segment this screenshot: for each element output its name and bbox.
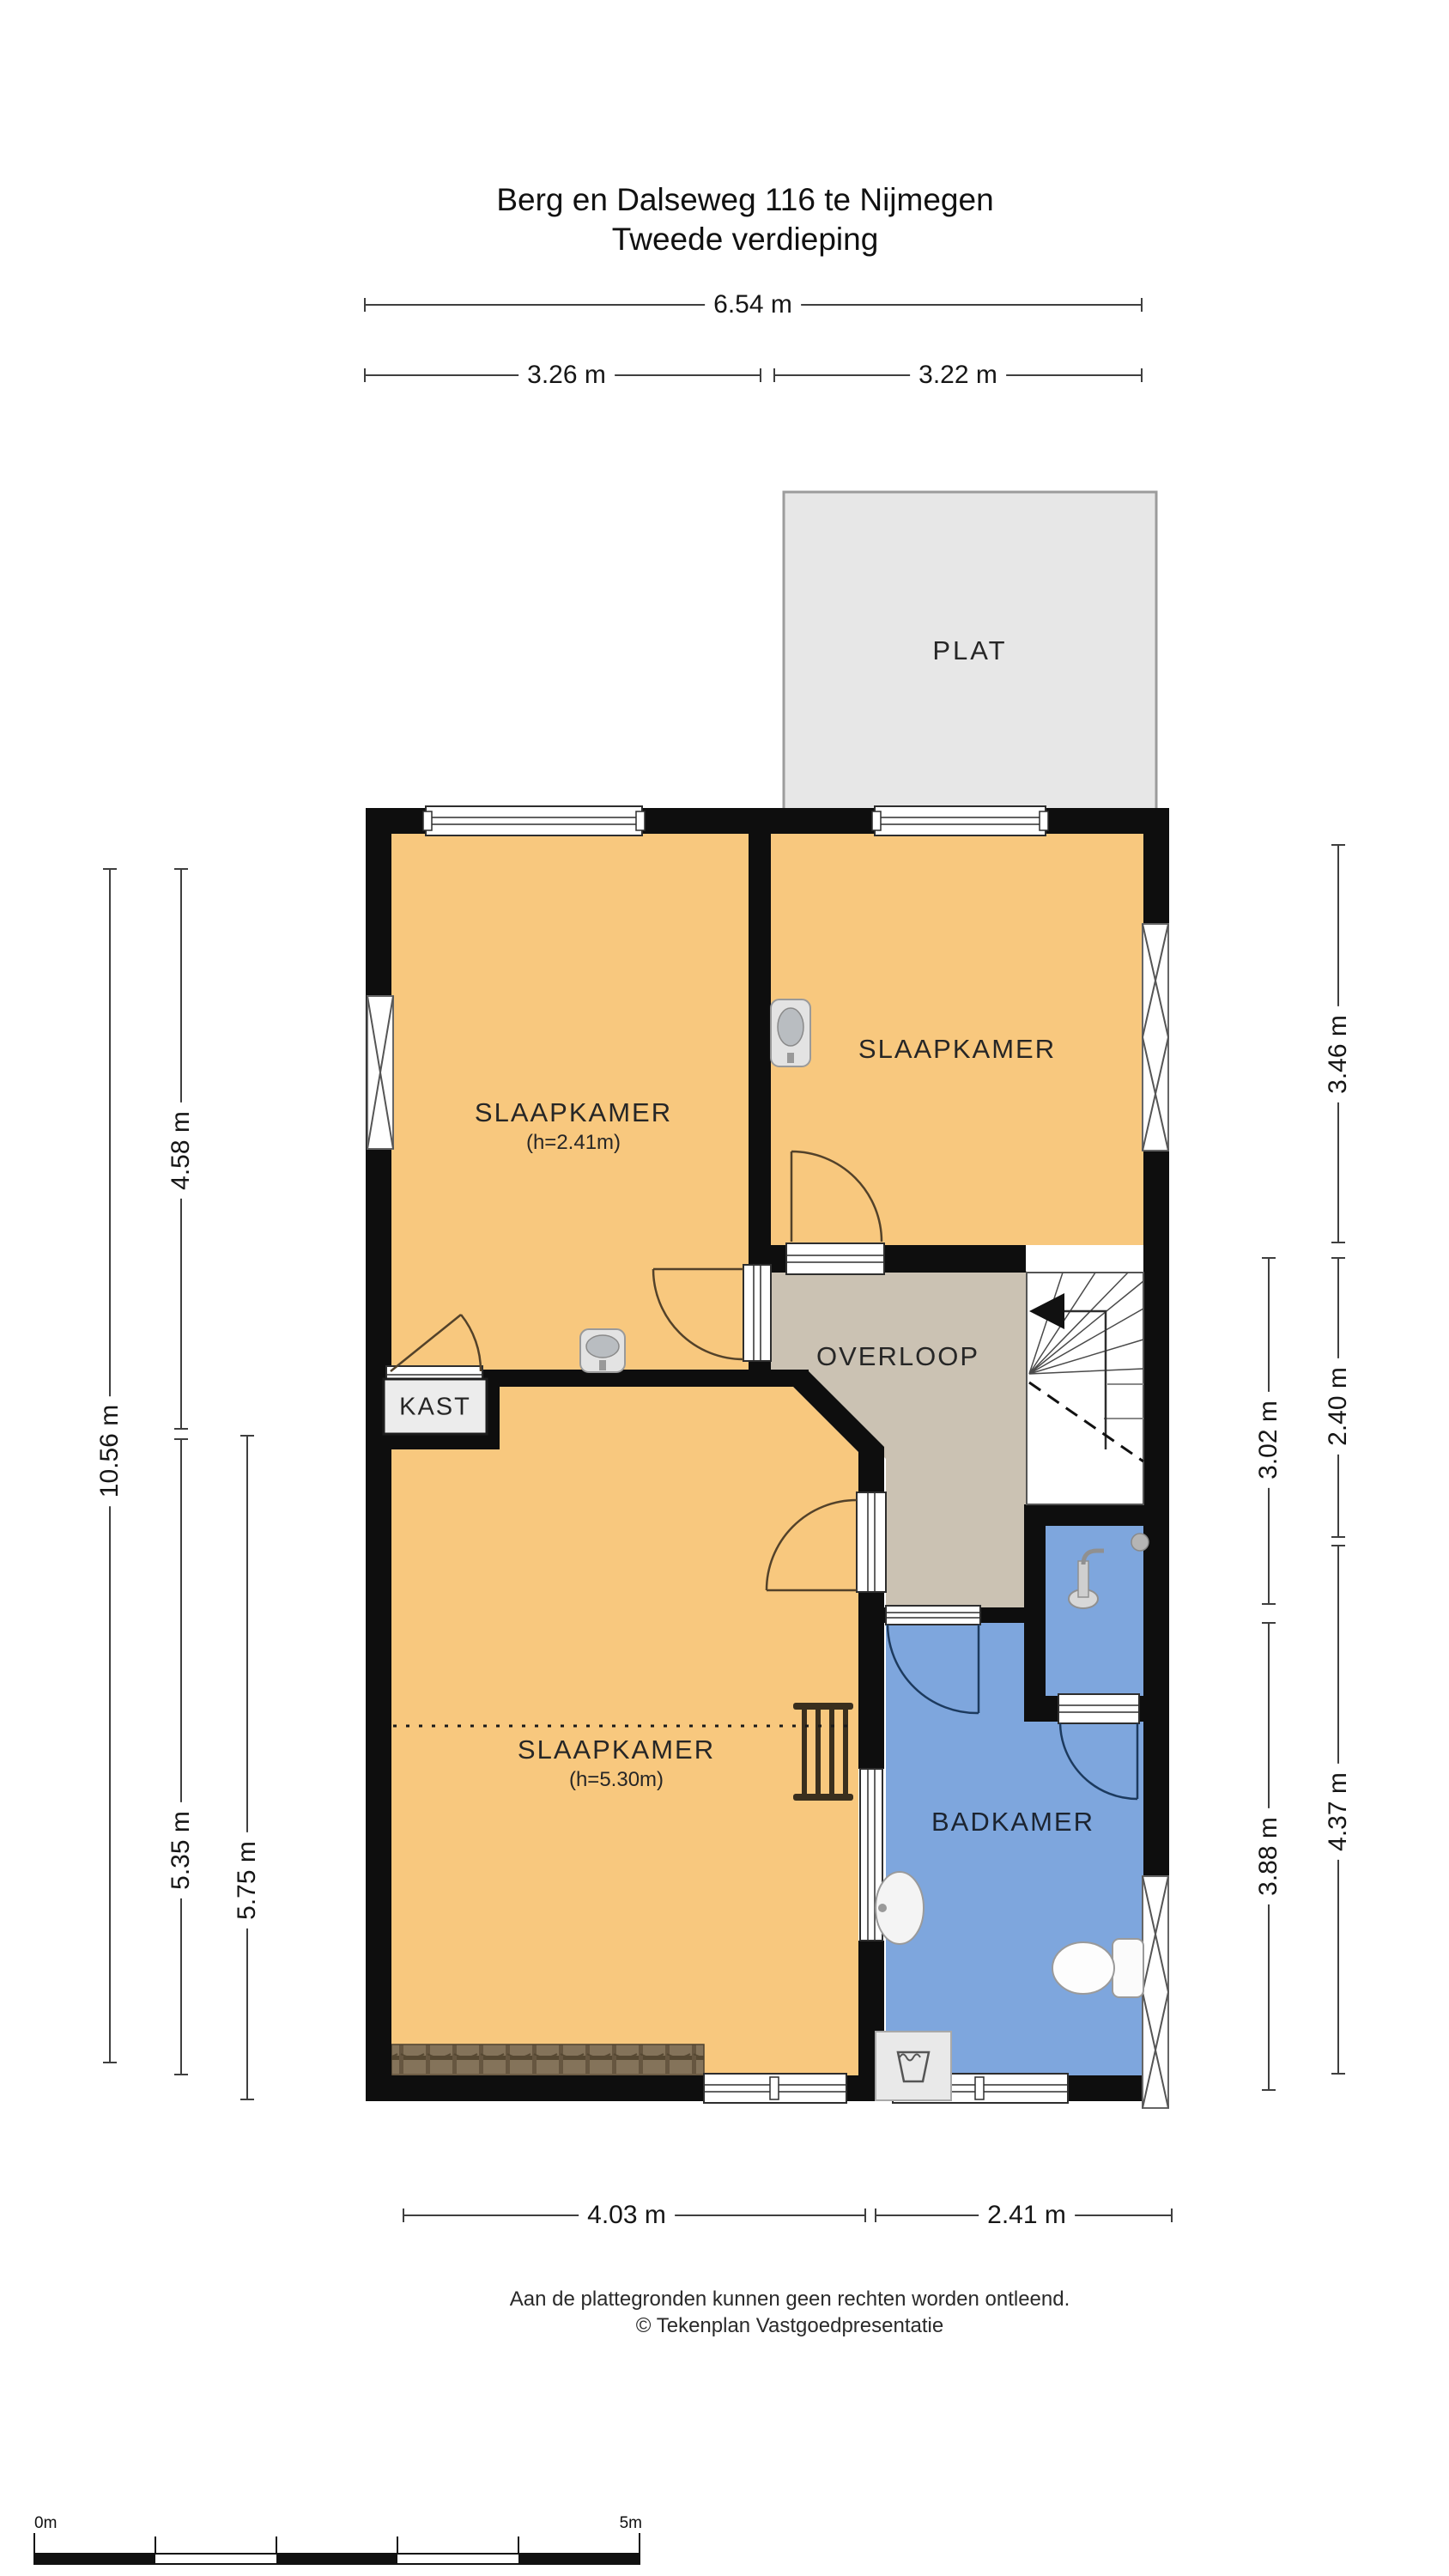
label-plat: PLAT (932, 635, 1007, 666)
label-badkamer: BADKAMER (931, 1807, 1094, 1838)
dim-left-outer: 10.56 m (95, 1396, 124, 1506)
page-title: Berg en Dalseweg 116 te Nijmegen Tweede … (496, 180, 993, 259)
dim-right-inner-upper: 3.02 m (1254, 1392, 1283, 1488)
dim-right-outer-middle: 2.40 m (1324, 1358, 1353, 1455)
footer-line2: © Tekenplan Vastgoedpresentatie (510, 2312, 1070, 2339)
washbasin-badkamer-icon (876, 1872, 924, 1944)
door-opening-slaapkamer-right (786, 1243, 884, 1274)
label-slaapkamer-right: SLAAPKAMER (858, 1034, 1056, 1065)
sink-slaapkamer-right-icon (771, 999, 810, 1066)
dim-top-right: 3.22 m (910, 361, 1006, 390)
label-slaapkamer-bottom-height: (h=5.30m) (569, 1768, 664, 1792)
label-kast: KAST (399, 1394, 471, 1422)
label-slaapkamer-left: SLAAPKAMER (475, 1097, 672, 1128)
window-top-right (872, 806, 1048, 835)
label-overloop: OVERLOOP (816, 1341, 979, 1372)
floorplan-page: Berg en Dalseweg 116 te Nijmegen Tweede … (0, 0, 1449, 2576)
footer-disclaimer: Aan de plattegronden kunnen geen rechten… (510, 2286, 1070, 2339)
toilet-badkamer-icon (1052, 1939, 1143, 1997)
door-opening-wc (1058, 1694, 1139, 1723)
window-left-wall (367, 996, 393, 1149)
scale-bar (34, 2533, 640, 2564)
dim-left-upper: 4.58 m (167, 1103, 196, 1199)
staircase (1027, 1273, 1143, 1504)
dim-top-left: 3.26 m (518, 361, 615, 390)
washing-machine-icon (876, 2032, 951, 2100)
label-slaapkamer-left-height: (h=2.41m) (526, 1131, 621, 1155)
window-bottom-left (704, 2074, 846, 2103)
dim-bottom-right: 2.41 m (979, 2201, 1075, 2230)
sink-slaapkamer-bottom-icon (580, 1329, 625, 1372)
dim-left-inner: 5.75 m (233, 1832, 262, 1929)
window-right-wall-top (1143, 924, 1168, 1151)
door-opening-slaapkamer-bottom (857, 1492, 886, 1592)
footer-line1: Aan de plattegronden kunnen geen rechten… (510, 2286, 1070, 2312)
scale-end-label: 5m (620, 2514, 642, 2533)
page-title-line2: Tweede verdieping (496, 220, 993, 259)
label-slaapkamer-bottom: SLAAPKAMER (518, 1735, 715, 1765)
dim-right-inner-lower: 3.88 m (1254, 1808, 1283, 1905)
window-top-left (423, 806, 645, 835)
door-opening-badkamer (886, 1606, 980, 1625)
dim-right-outer-lower: 4.37 m (1324, 1764, 1353, 1860)
scale-start-label: 0m (34, 2514, 57, 2533)
page-title-line1: Berg en Dalseweg 116 te Nijmegen (496, 180, 993, 220)
dim-left-lower: 5.35 m (167, 1802, 196, 1899)
room-slaapkamer-bottom (391, 1385, 858, 2075)
dim-bottom-left: 4.03 m (579, 2201, 675, 2230)
floor-plan-svg (0, 0, 1449, 2576)
dim-top-total: 6.54 m (705, 290, 801, 319)
dim-right-outer-upper: 3.46 m (1324, 1006, 1353, 1103)
door-opening-slaapkamer-left (743, 1265, 771, 1361)
window-right-wall-bathroom (1143, 1876, 1168, 2108)
